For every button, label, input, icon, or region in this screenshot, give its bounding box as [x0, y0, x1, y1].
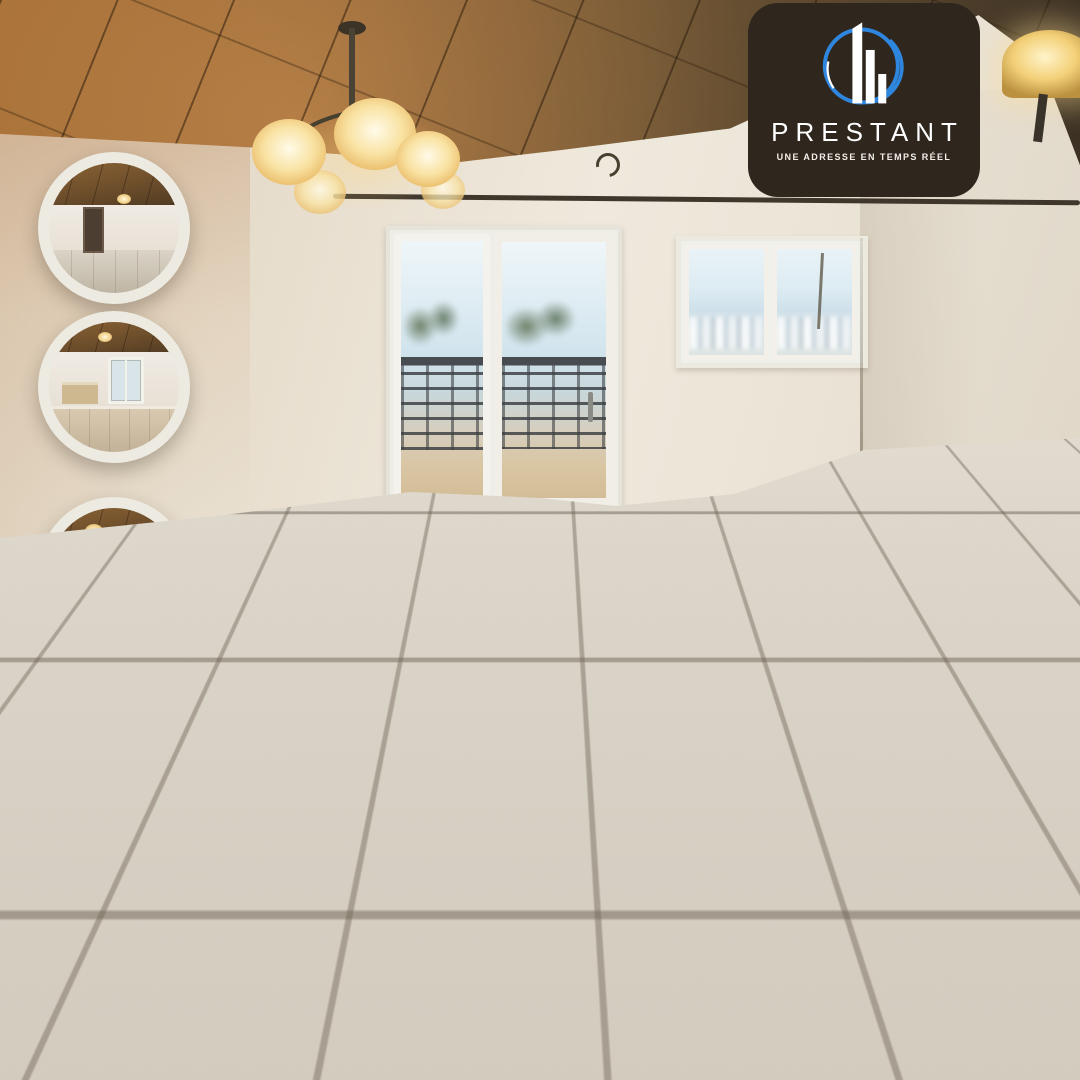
- facebook-row[interactable]: f @prestant237: [735, 977, 1080, 1008]
- email-icon: [735, 1018, 766, 1049]
- bullet-icon: [395, 961, 403, 969]
- location-row: ODZA: [53, 995, 222, 1047]
- map-pin-icon: [47, 999, 85, 1037]
- bullet-icon: [395, 1049, 403, 1057]
- phone-icon: [735, 934, 768, 967]
- feature-item: Eau Chaude: [395, 994, 633, 1023]
- facebook-icon: f: [735, 978, 764, 1007]
- phone-row[interactable]: (+237) 653323187: [735, 933, 1080, 967]
- location-name: ODZA: [94, 995, 222, 1047]
- city-label: Yaoundé: [57, 750, 207, 792]
- email-address: prestant237@gmail.com: [777, 1018, 1080, 1049]
- feature-label: Eau Chaude: [418, 994, 562, 1023]
- info-content: Yaoundé APPARTEMENT HAUT STANDING À Loue…: [0, 0, 1080, 1080]
- area-value: 135: [822, 708, 945, 775]
- listing-title-line1: APPARTEMENT: [50, 805, 485, 871]
- intro-label: Votre futur propriété: [57, 962, 298, 991]
- feature-item: Parking + Gardien: [395, 1038, 633, 1067]
- area-unit-sup: 2: [897, 775, 916, 813]
- email-row[interactable]: prestant237@gmail.com: [735, 1018, 1080, 1049]
- phone-number: 653323187: [850, 933, 1005, 967]
- contact-block: (+237) 653323187 f @prestant237 prestant…: [735, 933, 1080, 1059]
- area-unit: M2: [852, 777, 917, 832]
- phone-prefix: (+237): [778, 937, 842, 963]
- status-badge[interactable]: À Louer: [492, 842, 680, 893]
- area-unit-base: M: [852, 773, 898, 835]
- feature-item: Avec Lustre: [395, 950, 633, 979]
- feature-label: Avec Lustre: [418, 950, 560, 979]
- facebook-handle: @prestant237: [776, 977, 954, 1008]
- listing-title-line2: HAUT STANDING: [52, 869, 411, 918]
- real-estate-flyer: PRESTANT UNE ADRESSE EN TEMPS RÉEL Yaoun…: [0, 0, 1080, 1080]
- feature-list: Avec Lustre Eau Chaude Parking + Gardien: [395, 950, 633, 1080]
- envelope-icon: [742, 1028, 759, 1040]
- area-qualifier: (Environ): [839, 838, 928, 864]
- area-badge: 135 M2 (Environ): [770, 672, 998, 900]
- feature-label: Parking + Gardien: [418, 1038, 633, 1067]
- bullet-icon: [395, 1005, 403, 1013]
